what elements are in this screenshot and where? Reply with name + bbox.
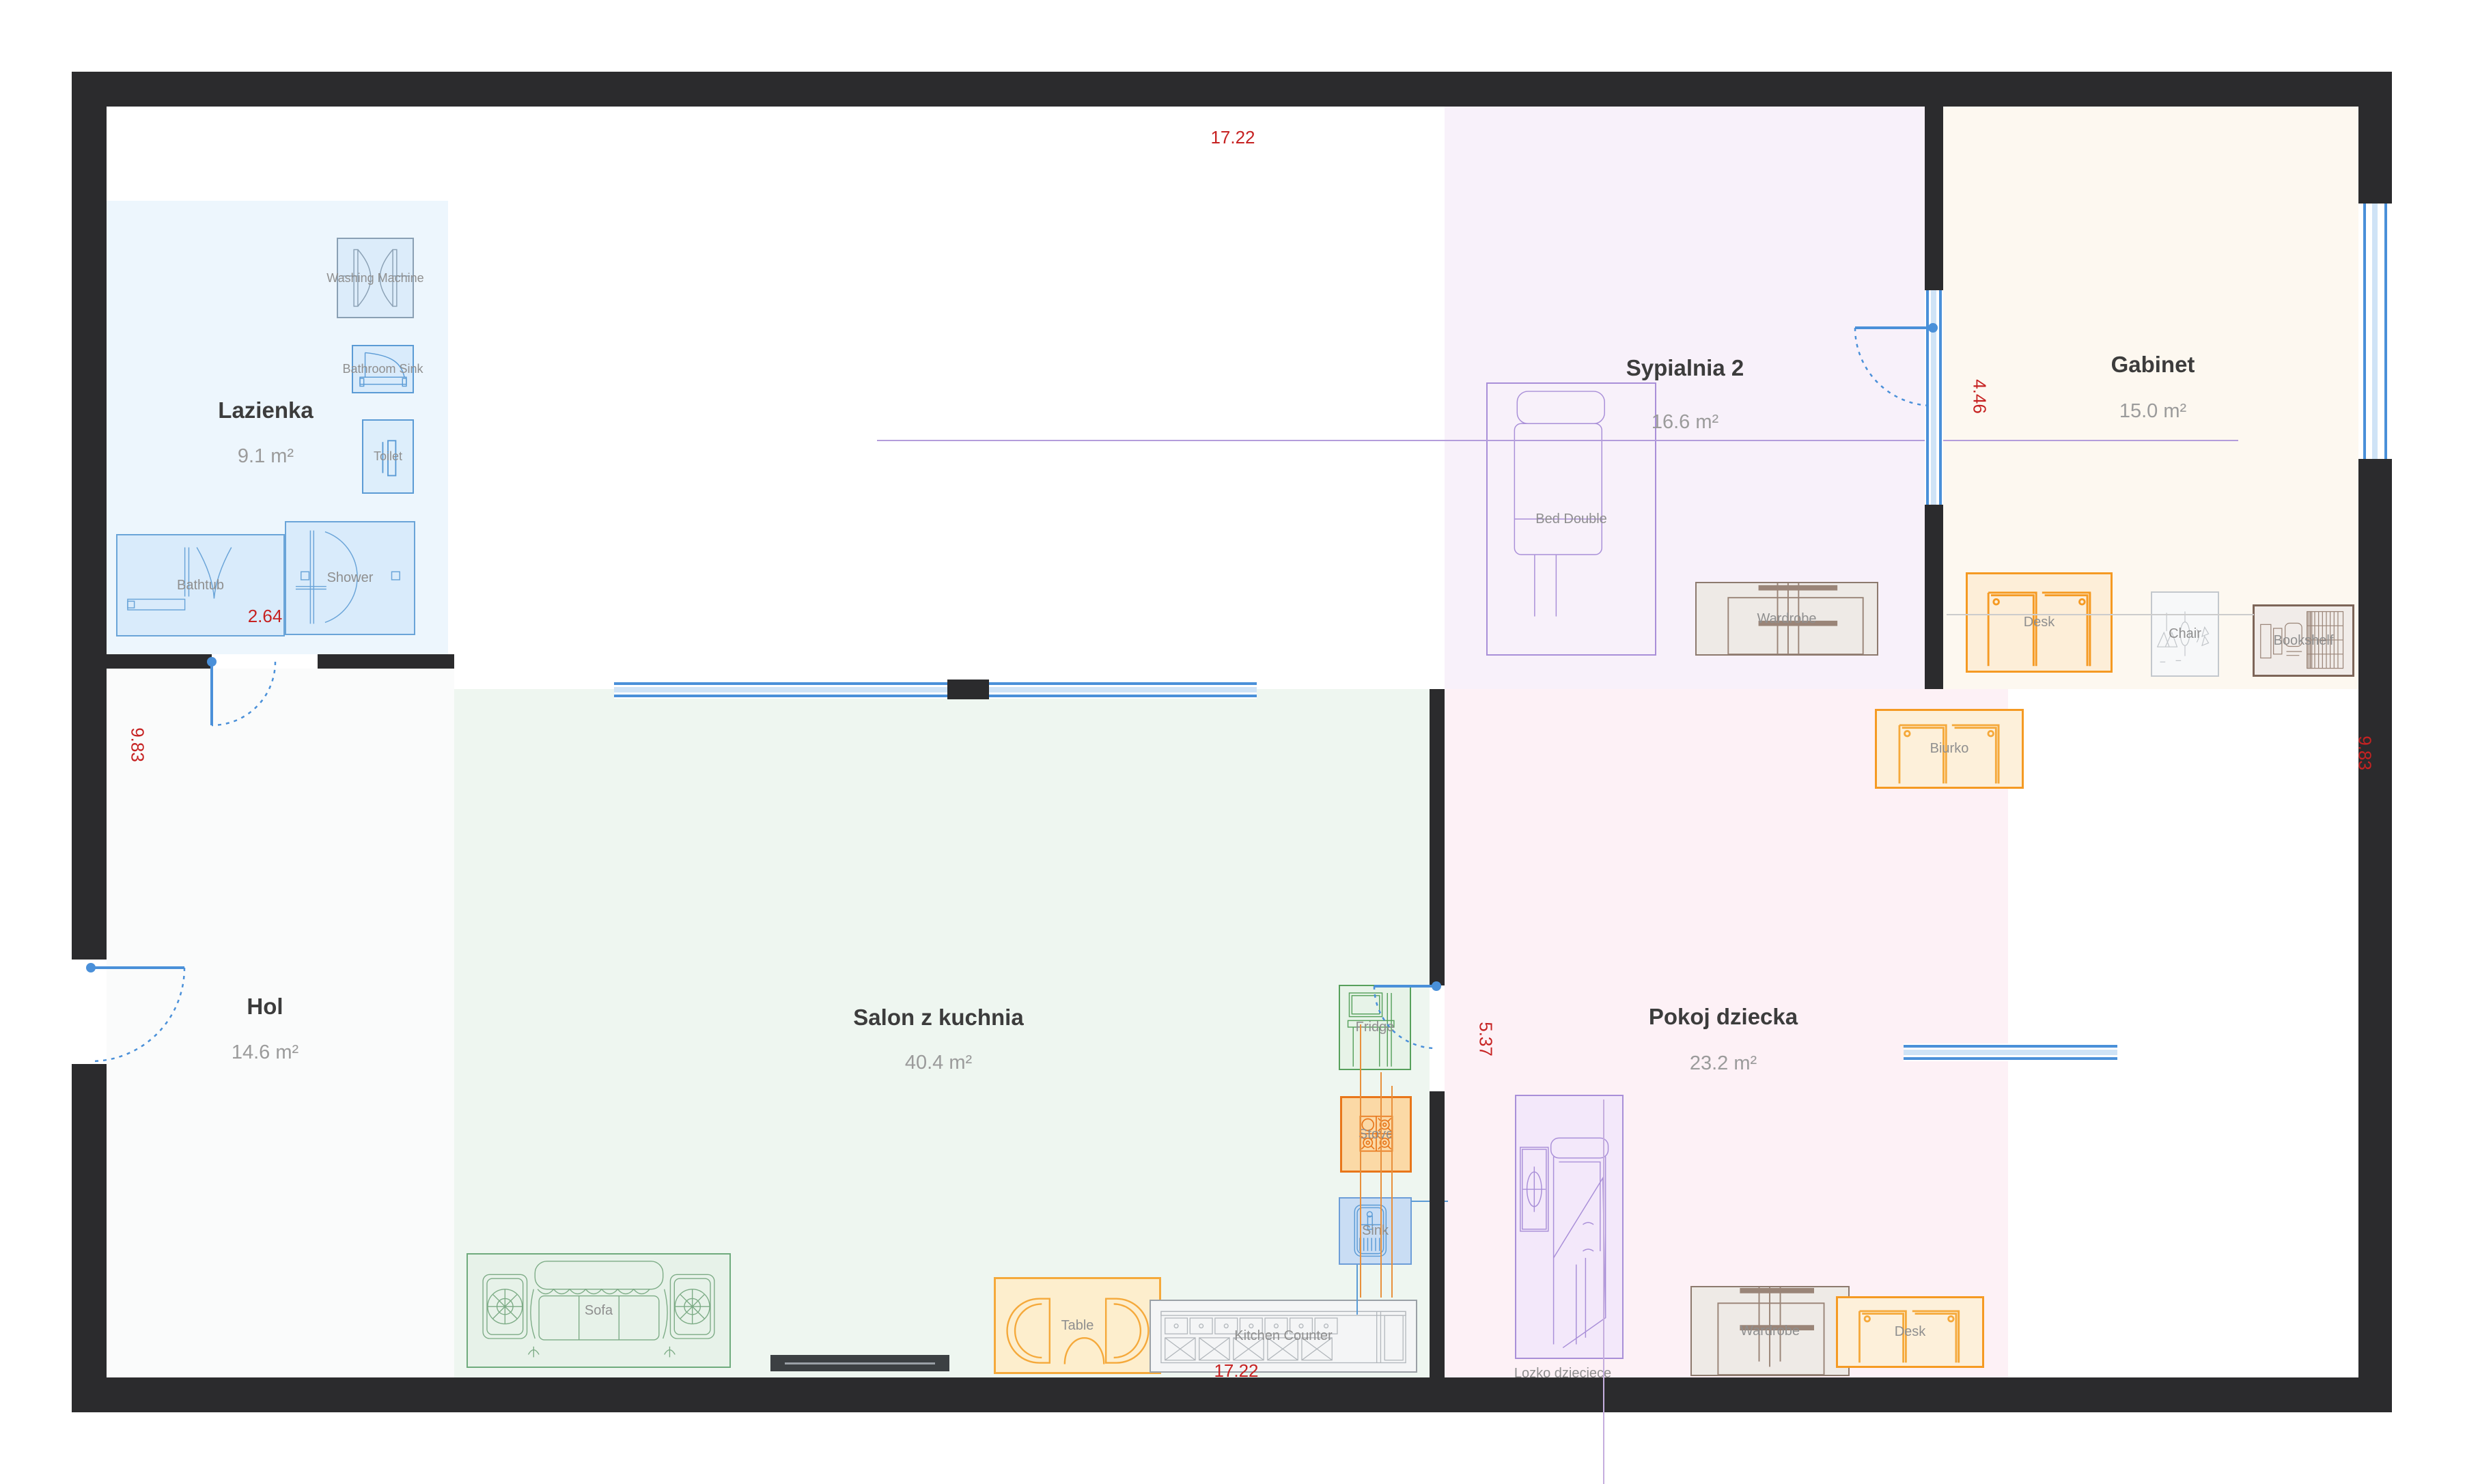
door-salon-pokoj[interactable] bbox=[1374, 981, 1441, 1048]
dimension-left: 9.83 bbox=[127, 714, 148, 776]
door-sypialnia[interactable] bbox=[1855, 323, 1938, 406]
dimension-top: 17.22 bbox=[1202, 127, 1264, 148]
room-label-pokoj: Pokoj dziecka bbox=[1600, 1004, 1846, 1030]
dimension-bottom: 17.22 bbox=[1206, 1360, 1267, 1382]
dimension-right: 9.83 bbox=[2354, 723, 2376, 784]
door-lazienka[interactable] bbox=[207, 657, 275, 725]
floor-plan-canvas[interactable]: Washing Machine Bathroom Sink Toilet Bat… bbox=[0, 0, 2465, 1484]
room-area-pokoj: 23.2 m² bbox=[1600, 1052, 1846, 1075]
dimension-sypialnia-wall: 4.46 bbox=[1969, 366, 1990, 428]
room-label-salon: Salon z kuchnia bbox=[816, 1005, 1061, 1031]
room-label-sypialnia2: Sypialnia 2 bbox=[1562, 355, 1808, 381]
room-area-lazienka: 9.1 m² bbox=[143, 445, 389, 468]
room-area-hol: 14.6 m² bbox=[142, 1041, 388, 1064]
room-label-gabinet: Gabinet bbox=[2030, 352, 2276, 378]
dimension-lazienka-inner: 2.64 bbox=[234, 606, 296, 627]
doors-overlay bbox=[0, 0, 2465, 1484]
room-label-hol: Hol bbox=[142, 994, 388, 1020]
room-area-salon: 40.4 m² bbox=[816, 1052, 1061, 1074]
room-label-lazienka: Lazienka bbox=[143, 397, 389, 423]
dimension-pokoj-wall: 5.37 bbox=[1475, 1009, 1496, 1070]
room-area-gabinet: 15.0 m² bbox=[2030, 400, 2276, 423]
room-area-sypialnia2: 16.6 m² bbox=[1562, 411, 1808, 434]
leader-line-lozko bbox=[1603, 1100, 1604, 1484]
